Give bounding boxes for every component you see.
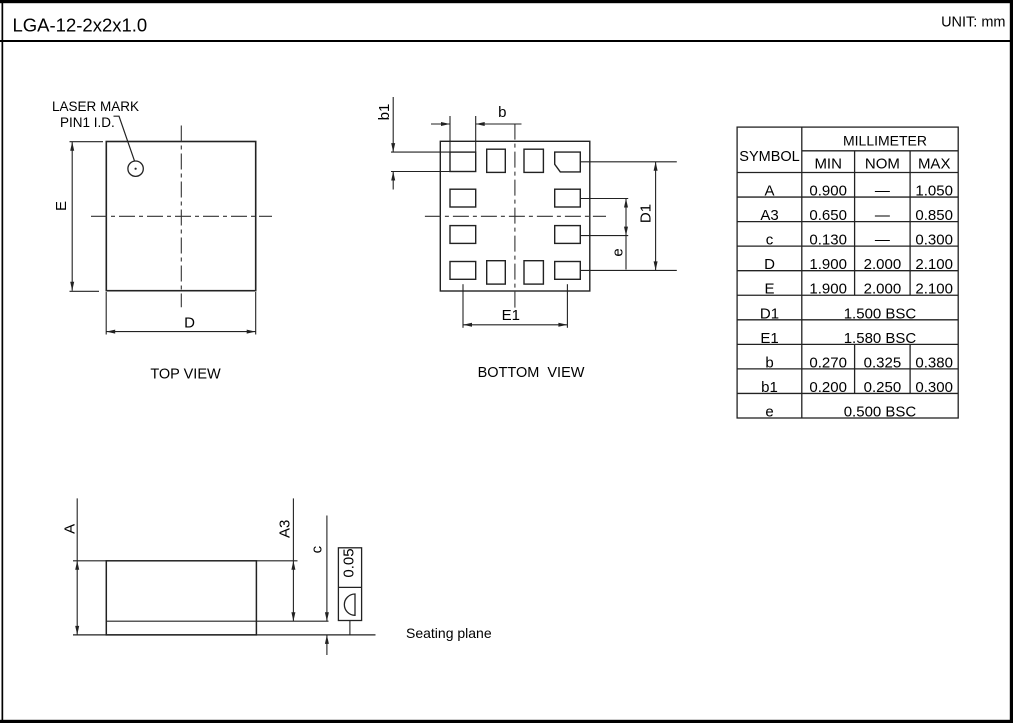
svg-text:A: A: [61, 524, 78, 534]
svg-text:0.900: 0.900: [809, 183, 847, 200]
svg-text:1.900: 1.900: [809, 281, 847, 298]
svg-text:D: D: [764, 256, 775, 273]
svg-text:0.380: 0.380: [915, 354, 953, 371]
svg-text:1.900: 1.900: [809, 256, 847, 273]
svg-text:—: —: [875, 207, 890, 224]
svg-text:e: e: [609, 248, 626, 256]
svg-text:1.050: 1.050: [915, 183, 953, 200]
svg-text:BOTTOM VIEW: BOTTOM VIEW: [478, 365, 585, 381]
svg-text:LGA-12-2x2x1.0: LGA-12-2x2x1.0: [13, 15, 148, 36]
svg-text:MAX: MAX: [918, 156, 951, 173]
svg-text:2.000: 2.000: [864, 256, 902, 273]
svg-text:D1: D1: [760, 305, 779, 322]
svg-text:A: A: [764, 183, 774, 200]
svg-text:D: D: [184, 315, 195, 332]
svg-text:D1: D1: [637, 204, 654, 223]
svg-text:E: E: [764, 281, 774, 298]
svg-text:A3: A3: [276, 520, 293, 538]
svg-text:0.325: 0.325: [864, 354, 902, 371]
svg-text:UNIT: mm: UNIT: mm: [941, 14, 1005, 30]
svg-text:2.100: 2.100: [915, 256, 953, 273]
svg-text:1.580 BSC: 1.580 BSC: [844, 330, 917, 347]
svg-text:E1: E1: [502, 307, 520, 324]
svg-text:PIN1 I.D.: PIN1 I.D.: [60, 115, 115, 130]
svg-text:LASER MARK: LASER MARK: [52, 99, 139, 114]
svg-text:b: b: [498, 104, 506, 121]
svg-text:b1: b1: [376, 104, 393, 121]
svg-text:0.200: 0.200: [809, 379, 847, 396]
svg-text:MILLIMETER: MILLIMETER: [843, 133, 927, 149]
svg-text:Seating plane: Seating plane: [406, 625, 492, 641]
svg-text:c: c: [766, 232, 774, 249]
svg-text:2.100: 2.100: [915, 281, 953, 298]
svg-text:MIN: MIN: [814, 156, 842, 173]
svg-text:E: E: [53, 201, 70, 211]
svg-text:TOP VIEW: TOP VIEW: [150, 367, 221, 383]
svg-text:0.130: 0.130: [809, 232, 847, 249]
svg-text:0.850: 0.850: [915, 207, 953, 224]
svg-text:—: —: [875, 183, 890, 200]
svg-text:0.270: 0.270: [809, 354, 847, 371]
svg-text:b: b: [765, 354, 773, 371]
svg-text:E1: E1: [760, 330, 778, 347]
svg-text:0.250: 0.250: [864, 379, 902, 396]
svg-text:e: e: [765, 404, 773, 421]
svg-text:NOM: NOM: [865, 156, 900, 173]
svg-text:0.650: 0.650: [809, 207, 847, 224]
svg-text:1.500 BSC: 1.500 BSC: [844, 305, 917, 322]
svg-text:0.300: 0.300: [915, 232, 953, 249]
svg-text:—: —: [875, 232, 890, 249]
svg-text:A3: A3: [760, 207, 778, 224]
svg-text:SYMBOL: SYMBOL: [739, 149, 799, 165]
svg-text:c: c: [308, 545, 325, 553]
svg-text:0.05: 0.05: [340, 548, 357, 577]
svg-text:0.300: 0.300: [915, 379, 953, 396]
svg-text:2.000: 2.000: [864, 281, 902, 298]
svg-text:b1: b1: [761, 379, 778, 396]
svg-text:0.500 BSC: 0.500 BSC: [844, 404, 917, 421]
